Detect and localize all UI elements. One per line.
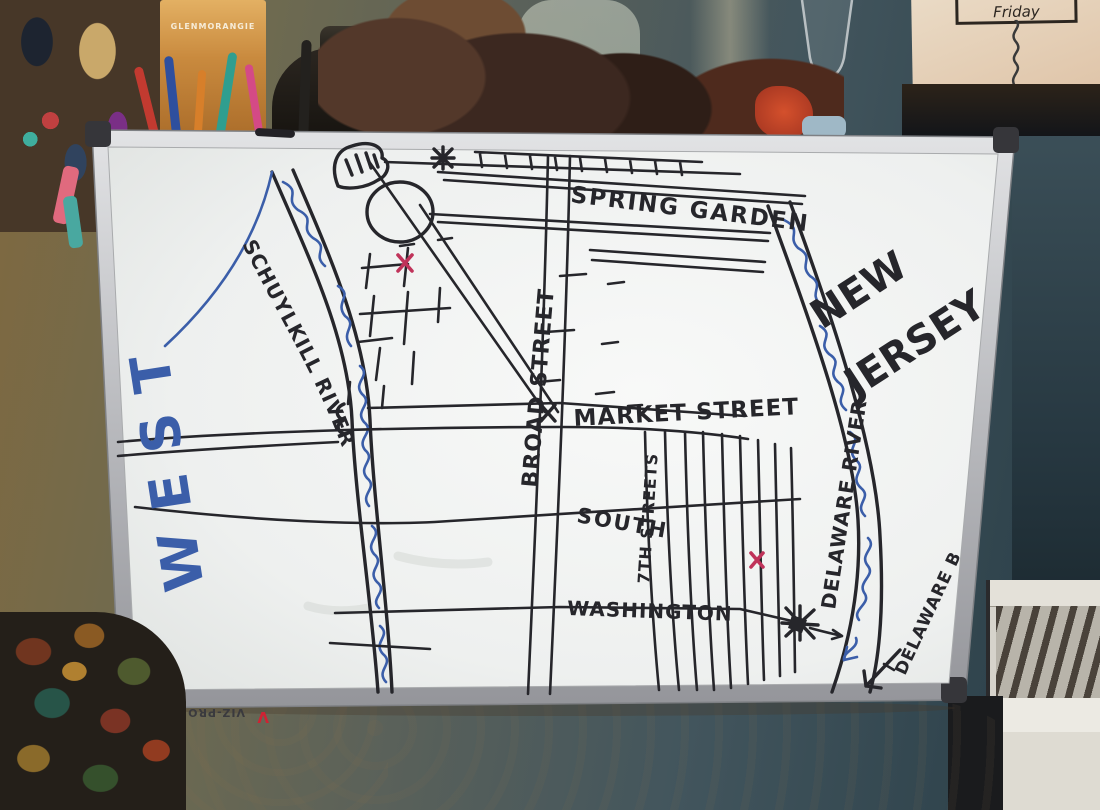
- radiator-panel: [990, 732, 1100, 810]
- brand-logo-icon: V: [257, 708, 269, 726]
- friday-note-title: Friday: [993, 2, 1040, 21]
- stained-glass-lamp: [0, 612, 186, 810]
- star-icon: [432, 147, 454, 169]
- board-brand: VIZ-PRO: [187, 706, 245, 719]
- brand-logo-letter: V: [257, 708, 269, 726]
- frame-corner-cap: [85, 121, 111, 147]
- room-photo: GLENMORANGIE Friday: [0, 0, 1100, 810]
- whiteboard: VIZ-PRO V: [55, 105, 1045, 730]
- board-brand-text: VIZ-PRO: [187, 706, 245, 719]
- friday-note-paper: Friday: [911, 0, 1100, 98]
- frame-corner-cap: [993, 127, 1019, 153]
- whisky-box-label: GLENMORANGIE: [164, 22, 262, 31]
